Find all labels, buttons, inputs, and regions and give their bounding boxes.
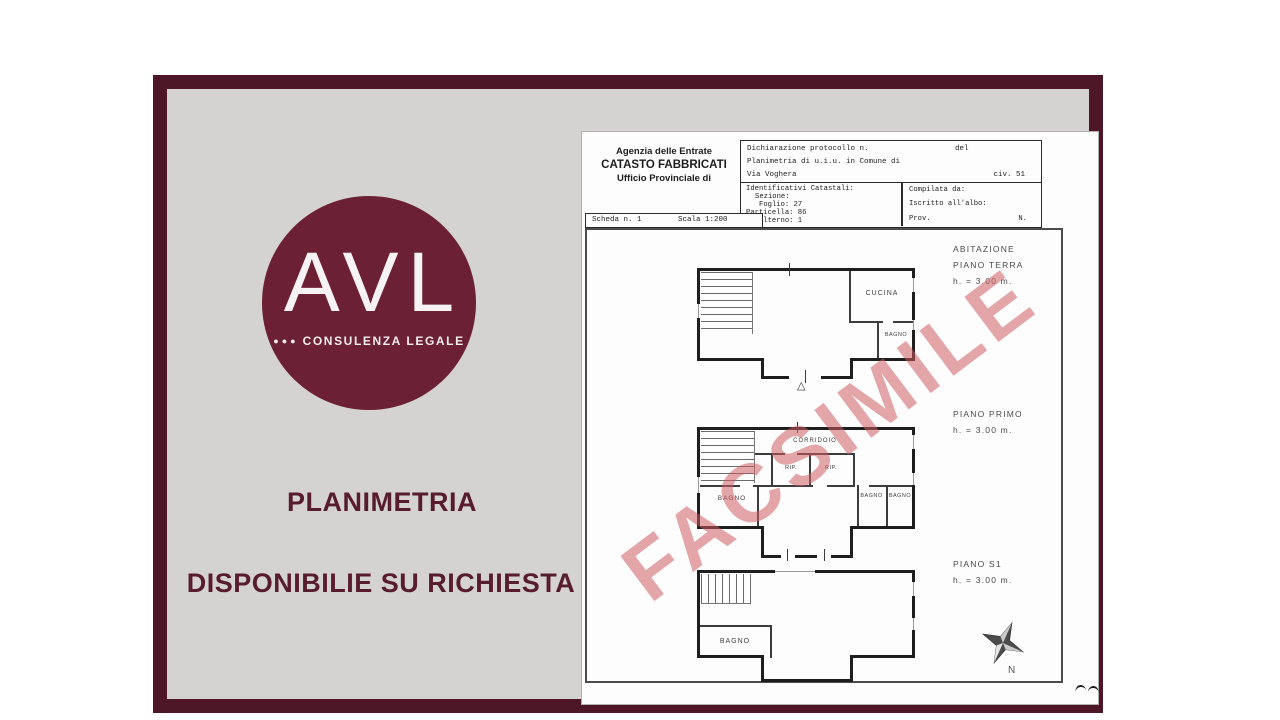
window-line (775, 571, 815, 572)
room-label-bagno-r1: BAGNO (858, 493, 885, 499)
catasto-foglio: Foglio: 27 (759, 201, 802, 209)
protocol-del: del (955, 145, 969, 153)
wall (761, 655, 764, 682)
agency-line2: CATASTO FABBRICATI (590, 159, 738, 171)
wall (761, 679, 853, 682)
caption-piano-s1: PIANO S1 h. = 3.00 m. (953, 556, 1013, 588)
compass-north-label: N (1008, 665, 1015, 676)
scheda-number: Scheda n. 1 (592, 216, 642, 224)
room-label-cucina: CUCINA (853, 290, 911, 297)
compilata-label: Compilata da: (909, 186, 965, 194)
interior-wall (849, 271, 851, 323)
catasto-sezione: Sezione: (755, 193, 790, 201)
interior-wall (700, 625, 772, 627)
prov-label: Prov. (909, 215, 931, 223)
wall (697, 358, 763, 361)
interior-wall (886, 485, 888, 526)
cadastral-document-page: Agenzia delle Entrate CATASTO FABBRICATI… (581, 131, 1099, 705)
opening-tick (824, 549, 825, 561)
address-line: Via Voghera (747, 171, 797, 179)
wall (795, 555, 817, 558)
logo-subtitle: ●●●CONSULENZA LEGALE (262, 334, 476, 348)
wall (912, 630, 915, 658)
declaration-box: Dichiarazione protocollo n. del Planimet… (740, 140, 1042, 228)
logo-dots-icon: ●●● (273, 336, 298, 346)
entrance-door-icon: △ (797, 381, 805, 391)
caption-s1-height: h. = 3.00 m. (953, 572, 1013, 588)
section-divider (901, 183, 903, 226)
window-line (913, 278, 914, 292)
page-corner-mark (1088, 686, 1099, 694)
wall (697, 268, 915, 271)
scheda-box: Scheda n. 1 Scala 1:200 (585, 213, 763, 228)
wall (697, 655, 763, 658)
wall (912, 485, 915, 529)
protocol-section: Dichiarazione protocollo n. del Planimet… (741, 141, 1041, 183)
wall (852, 526, 915, 529)
window-line (913, 435, 914, 449)
protocol-label: Dichiarazione protocollo n. (747, 145, 869, 153)
wall (850, 655, 915, 658)
planimetria-line: Planimetria di u.i.u. in Comune di (747, 158, 900, 166)
wall (761, 376, 789, 379)
agency-line1: Agenzia delle Entrate (590, 146, 738, 157)
compass-icon (980, 620, 1026, 666)
wall (697, 268, 700, 304)
plan-s1-drawing: BAGNO (697, 570, 915, 685)
window-line (698, 304, 699, 318)
listing-image: AVL ●●●CONSULENZA LEGALE PLANIMETRIA DIS… (0, 0, 1280, 720)
wall (912, 449, 915, 473)
wall (912, 268, 915, 278)
panel-subtitle: DISPONIBILIE SU RICHIESTA (161, 568, 601, 599)
opening-tick (787, 549, 788, 561)
wall (815, 570, 915, 573)
identifiers-section: Identificativi Catastali: Sezione: Fogli… (741, 183, 1041, 226)
panel-title: PLANIMETRIA (182, 487, 582, 518)
wall (912, 596, 915, 618)
interior-wall (869, 485, 912, 487)
window-line (913, 473, 914, 485)
stairs-hatch (701, 272, 753, 334)
logo-text: AVL (262, 234, 476, 331)
wall (697, 318, 700, 361)
iscritto-label: Iscritto all'albo: (909, 200, 987, 208)
window-line (913, 582, 914, 596)
agency-line3: Ufficio Provinciale di (590, 173, 738, 184)
scala-value: Scala 1:200 (678, 216, 728, 224)
n-label: N. (1018, 215, 1027, 223)
agency-header: Agenzia delle Entrate CATASTO FABBRICATI… (590, 146, 738, 184)
caption-primo-height: h. = 3.00 m. (953, 422, 1023, 438)
interior-wall (857, 485, 859, 526)
wall (761, 555, 781, 558)
wall (850, 526, 853, 557)
logo-subtitle-text: CONSULENZA LEGALE (303, 334, 465, 348)
interior-wall (770, 625, 772, 658)
opening-tick (789, 263, 790, 276)
page-corner-mark (1075, 684, 1087, 692)
room-label-bagno-r2: BAGNO (887, 493, 913, 499)
catasto-title: Identificativi Catastali: (746, 185, 854, 193)
wall (850, 655, 853, 682)
caption-piano-s1-line: PIANO S1 (953, 556, 1013, 572)
caption-piano-primo: PIANO PRIMO h. = 3.00 m. (953, 406, 1023, 438)
caption-piano-primo-line: PIANO PRIMO (953, 406, 1023, 422)
room-label-bagno-s1: BAGNO (709, 638, 761, 645)
civ-number: civ. 51 (993, 171, 1025, 179)
caption-abitazione: ABITAZIONE (953, 241, 1024, 257)
maroon-frame: AVL ●●●CONSULENZA LEGALE PLANIMETRIA DIS… (153, 75, 1103, 713)
wall (912, 570, 915, 582)
wall (831, 555, 853, 558)
wall (697, 427, 700, 477)
avl-logo: AVL ●●●CONSULENZA LEGALE (262, 196, 476, 410)
window-line (913, 618, 914, 630)
